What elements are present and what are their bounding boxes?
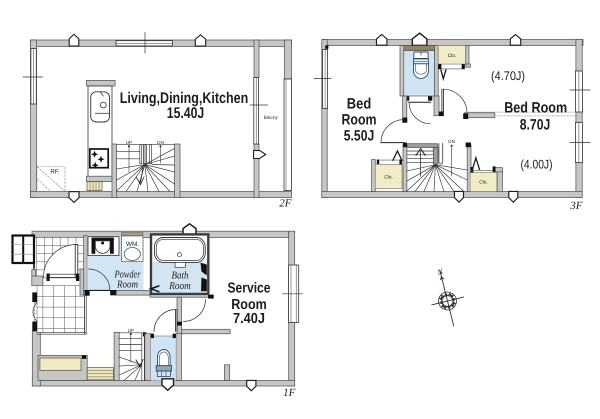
svg-text:Bed: Bed bbox=[347, 96, 372, 113]
svg-text:7.40J: 7.40J bbox=[233, 311, 265, 327]
svg-text:1F: 1F bbox=[283, 387, 296, 399]
svg-text:Clo.: Clo. bbox=[479, 180, 488, 186]
svg-text:8.70J: 8.70J bbox=[520, 117, 551, 134]
svg-text:Clo.: Clo. bbox=[384, 175, 393, 181]
svg-text:UP: UP bbox=[126, 140, 132, 145]
svg-text:Clo.: Clo. bbox=[448, 53, 457, 59]
svg-text:Bed Room: Bed Room bbox=[504, 100, 567, 117]
svg-text:(4.70J): (4.70J) bbox=[491, 69, 525, 83]
svg-text:Service: Service bbox=[228, 281, 271, 297]
svg-text:Balcony: Balcony bbox=[264, 115, 278, 121]
svg-text:RF.: RF. bbox=[50, 169, 60, 176]
svg-text:3F: 3F bbox=[569, 200, 583, 212]
svg-text:15.40J: 15.40J bbox=[167, 105, 205, 122]
svg-text:DN: DN bbox=[448, 139, 455, 144]
svg-text:Room: Room bbox=[168, 281, 191, 292]
svg-text:DN: DN bbox=[157, 140, 164, 145]
svg-text:Room: Room bbox=[116, 279, 138, 290]
svg-text:2F: 2F bbox=[279, 198, 292, 210]
svg-text:(4.00J): (4.00J) bbox=[521, 157, 553, 171]
svg-text:UP: UP bbox=[128, 328, 134, 333]
svg-text:5.50J: 5.50J bbox=[344, 128, 375, 145]
svg-text:WM.: WM. bbox=[126, 241, 139, 248]
svg-text:Room: Room bbox=[342, 112, 377, 129]
